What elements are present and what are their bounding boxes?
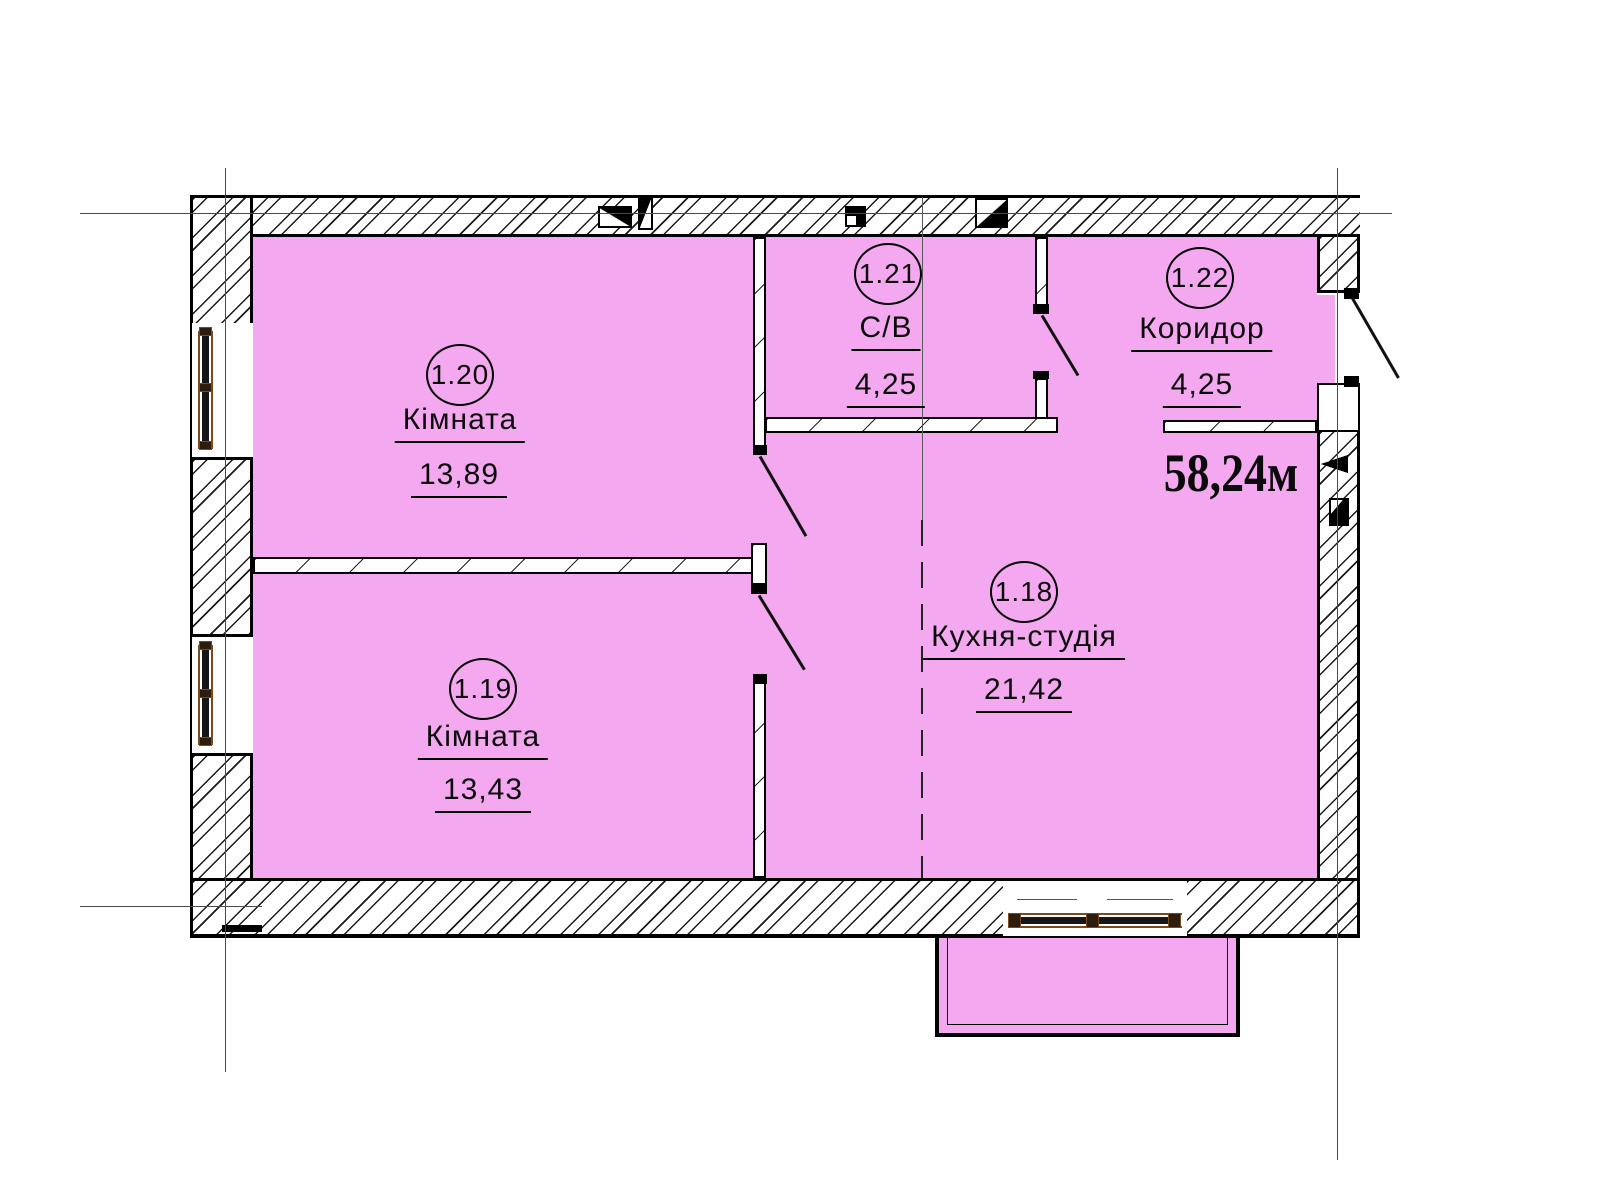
total-area-label: 58,24м bbox=[1164, 442, 1299, 504]
door-cap-room120 bbox=[753, 445, 767, 455]
partition-bath-east-jamb bbox=[1035, 378, 1048, 419]
axis-line-horizontal-top bbox=[80, 213, 1392, 214]
room-area-1-22: 4,25 bbox=[1163, 368, 1241, 408]
room-number-circle-1-20: 1.20 bbox=[426, 344, 494, 406]
wall-left-middle-pier bbox=[190, 457, 253, 637]
room-name-1-20: Кімната bbox=[395, 403, 525, 443]
door-cap-room119 bbox=[751, 583, 767, 594]
wall-bottom-right bbox=[1187, 878, 1360, 938]
axis-line-vertical-right bbox=[1337, 168, 1338, 1160]
wall-marker-arrow-icon bbox=[1321, 455, 1348, 473]
wall-bottom-left bbox=[190, 878, 1003, 938]
balcony-inner-rail-line bbox=[947, 932, 1228, 1025]
room-number: 1.18 bbox=[995, 576, 1054, 608]
zone-dashed-line bbox=[921, 520, 923, 878]
wall-top bbox=[190, 195, 1360, 237]
door-cap-bath-jamb bbox=[1033, 371, 1049, 379]
entry-opening-floor bbox=[1317, 295, 1335, 383]
door-cap-kitchenwall bbox=[753, 674, 767, 684]
partition-bath-east bbox=[1035, 237, 1048, 312]
entry-door-cap-bottom bbox=[1344, 376, 1359, 387]
partition-bath-south bbox=[765, 417, 1058, 433]
room-number: 1.20 bbox=[431, 359, 490, 391]
room-area-1-20: 13,89 bbox=[411, 458, 507, 498]
axis-line-vertical-center bbox=[922, 197, 923, 520]
axis-line-vertical-left bbox=[225, 168, 226, 1072]
room-number-circle-1-21: 1.21 bbox=[854, 243, 922, 305]
window-left-1 bbox=[190, 323, 253, 457]
room-name-1-18: Кухня-студія bbox=[923, 620, 1125, 660]
corner-tick bbox=[222, 925, 262, 932]
vent-marker-1-icon bbox=[598, 206, 632, 228]
door-cap-bath bbox=[1033, 304, 1049, 314]
window-balcony bbox=[1003, 878, 1187, 938]
partition-room119-kitchen bbox=[753, 676, 766, 878]
room-area-1-21: 4,25 bbox=[847, 368, 925, 408]
door-leaf-entry bbox=[1351, 297, 1400, 379]
partition-corridor-south bbox=[1163, 420, 1317, 433]
room-area-1-18: 21,42 bbox=[976, 673, 1072, 713]
vent-marker-3-icon bbox=[845, 206, 866, 227]
window-left-2 bbox=[190, 637, 253, 753]
wall-marker-hatch-icon bbox=[1329, 498, 1349, 526]
room-number: 1.21 bbox=[859, 258, 918, 290]
axis-line-horizontal-bottom bbox=[80, 906, 262, 907]
wall-left-upper bbox=[190, 195, 253, 323]
room-name-1-19: Кімната bbox=[418, 720, 548, 760]
vent-marker-2-icon bbox=[638, 198, 653, 230]
partition-rooms-divider bbox=[253, 557, 753, 574]
entry-door-jamb bbox=[1317, 383, 1360, 432]
room-number: 1.19 bbox=[454, 673, 513, 705]
room-name-1-22: Коридор bbox=[1131, 312, 1272, 352]
wall-right-lower bbox=[1317, 432, 1360, 878]
room-name-1-21: С/В bbox=[851, 311, 920, 351]
room-number-circle-1-22: 1.22 bbox=[1166, 247, 1234, 309]
room-number-circle-1-18: 1.18 bbox=[990, 561, 1058, 623]
room-number: 1.22 bbox=[1171, 262, 1230, 294]
room-number-circle-1-19: 1.19 bbox=[449, 658, 517, 720]
floor-plan: 1.20 Кімната 13,89 1.19 Кімната 13,43 1.… bbox=[0, 0, 1600, 1200]
room-area-1-19: 13,43 bbox=[435, 773, 531, 813]
wall-right-upper bbox=[1317, 237, 1360, 293]
